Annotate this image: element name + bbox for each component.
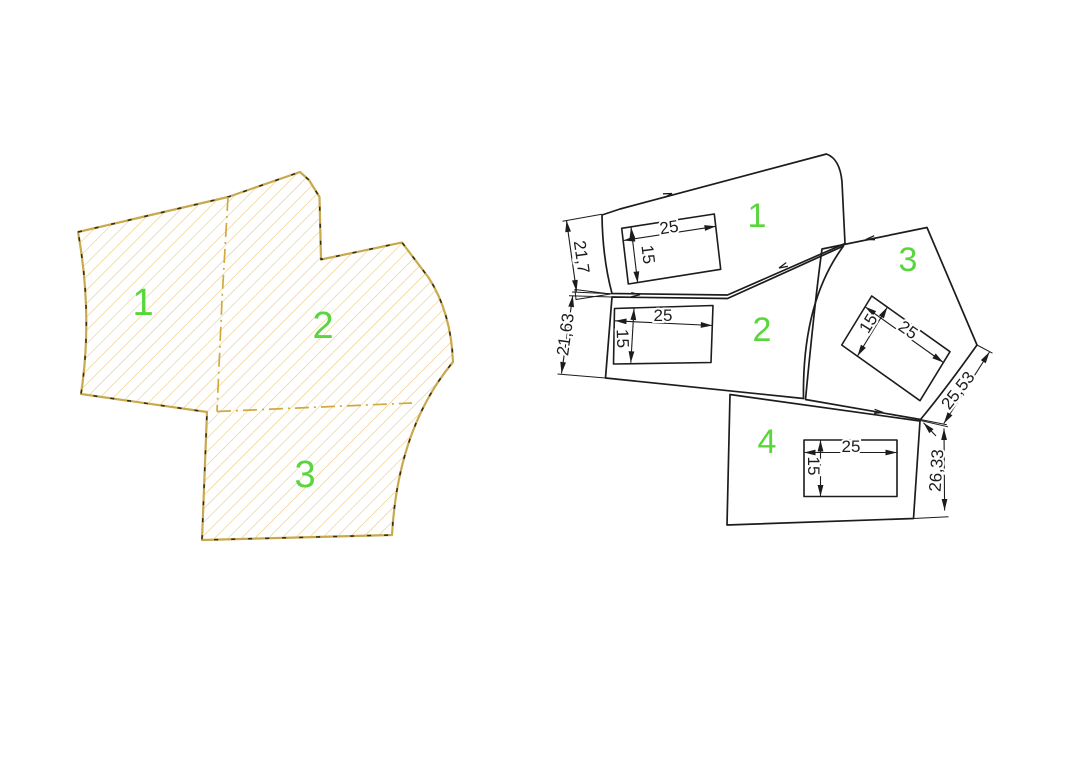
piece-2-label: 2 <box>753 311 772 349</box>
cad-canvas: 1 2 3 1 2 3 4 25 15 <box>0 0 1080 759</box>
piece-4-label: 4 <box>758 423 777 461</box>
piece-2-inner-rect: 25 15 <box>613 306 713 365</box>
piece-4-inner-rect: 25 15 <box>804 437 897 497</box>
piece-1-inner-rect: 25 15 <box>622 214 721 284</box>
piece-1-width-dim: 25 <box>658 217 680 239</box>
piece-3-inner-rect: 25 15 <box>842 296 950 401</box>
parts-figure: 1 2 3 4 25 15 25 15 25 15 <box>553 154 992 525</box>
piece-1-label: 1 <box>748 197 767 235</box>
piece-3-width-dim: 25 <box>895 317 921 343</box>
left-region-3-label: 3 <box>294 454 315 496</box>
piece-1-height-dim: 15 <box>637 244 658 265</box>
drawing-svg: 1 2 3 1 2 3 4 25 15 <box>0 0 1080 759</box>
piece-3-height-dim: 15 <box>855 310 881 336</box>
dim-21-63-label: 21,63 <box>553 312 578 357</box>
piece-4-width-dim: 25 <box>842 437 861 456</box>
piece-1-outline <box>602 154 845 295</box>
edge-tick-arrow <box>779 263 788 268</box>
piece-2-width-dim: 25 <box>654 306 673 325</box>
hatched-outline <box>78 172 453 540</box>
piece-4-height-dim: 15 <box>804 457 823 476</box>
dim-26-33-label: 26,33 <box>926 449 948 493</box>
junction-triangle <box>575 290 611 300</box>
hatched-figure: 1 2 3 <box>78 172 453 540</box>
piece-3-label: 3 <box>899 241 918 279</box>
dim-piece-2-edge: 21,63 <box>553 296 612 379</box>
left-region-1-label: 1 <box>132 282 153 324</box>
dim-piece-3-edge: 25,53 <box>921 345 993 436</box>
left-region-2-label: 2 <box>312 305 333 347</box>
piece-2-height-dim: 15 <box>613 329 633 349</box>
